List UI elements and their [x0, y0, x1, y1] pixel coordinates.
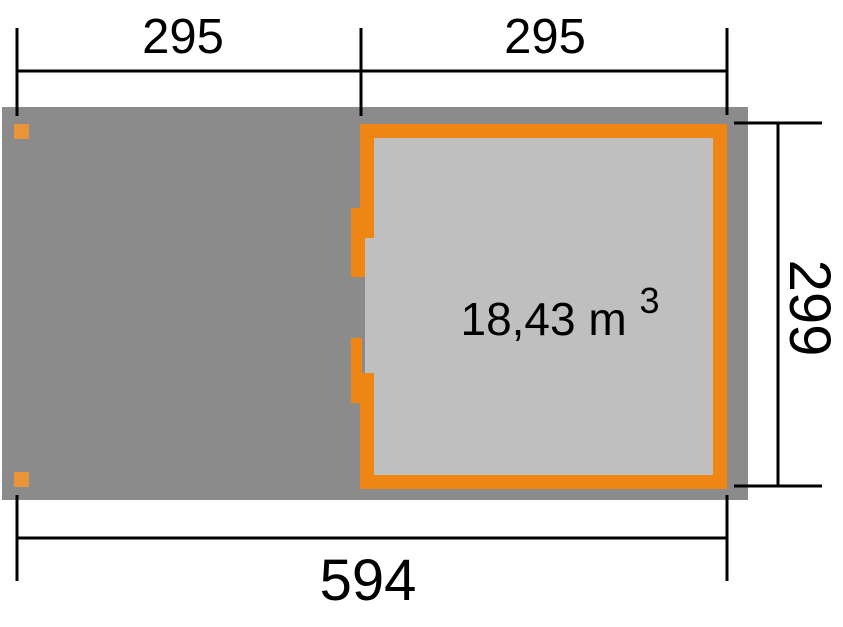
wall-bottom: [360, 475, 727, 489]
wall-left-lower: [360, 403, 374, 475]
door-jamb-upper: [351, 208, 374, 238]
wall-right: [713, 124, 727, 489]
dimension-right: 299: [734, 123, 842, 486]
dimension-bottom: 594: [17, 495, 727, 613]
volume-exponent-superscript: 3: [639, 280, 659, 321]
door-jamb-lower: [351, 373, 374, 403]
post-top-left: [14, 124, 29, 139]
door-stub-upper: [351, 238, 365, 277]
dimension-label-bottom: 594: [320, 548, 417, 613]
dimension-line-top: [17, 28, 727, 116]
dimension-top: 295 295: [17, 10, 727, 116]
wall-top: [360, 124, 727, 138]
floor-plan-drawing: 295 295 299 594 18,43 m 3: [0, 0, 843, 627]
post-bottom-left: [14, 472, 29, 487]
dimension-label-top-left: 295: [142, 10, 224, 64]
dimension-label-right: 299: [777, 260, 842, 357]
floor-plan-page: 295 295 299 594 18,43 m 3: [0, 0, 843, 627]
wall-left-upper: [360, 124, 374, 208]
volume-value: 18,43 m: [460, 293, 626, 345]
door-stub-lower: [351, 338, 362, 373]
dimension-label-top-right: 295: [504, 10, 586, 64]
